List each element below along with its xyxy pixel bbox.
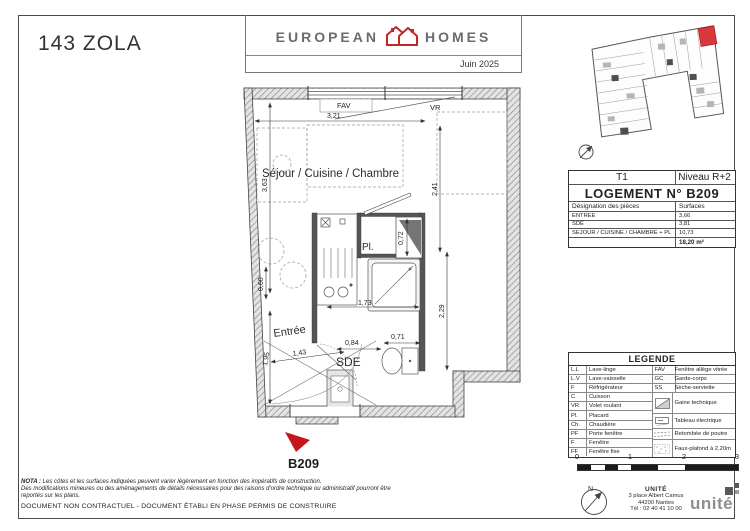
legend-label: Réfrigérateur bbox=[587, 384, 651, 392]
key-plan-compass-icon bbox=[579, 145, 593, 159]
legend-label: Porte fenêtre bbox=[587, 430, 651, 438]
total-surface: 18,20 m² bbox=[676, 238, 733, 247]
table-row: SEJOUR / CUISINE / CHAMBRE + PL 10,73 bbox=[569, 229, 735, 238]
room-surface: 3,81 bbox=[676, 221, 733, 229]
highlighted-unit bbox=[698, 26, 717, 47]
unit-level: Niveau R+2 bbox=[676, 171, 733, 184]
legend-row: CCuisson bbox=[569, 393, 652, 402]
legend-label: Volet roulant bbox=[587, 402, 651, 410]
toilet bbox=[382, 348, 418, 374]
legend-left-column: L.LLave-linge L.VLave-vaisselle FRéfrigé… bbox=[569, 366, 652, 457]
legend-label: Gaine technique bbox=[673, 393, 735, 413]
nota-line: NOTA : Les côtes et les surfaces indiqué… bbox=[21, 479, 451, 486]
room-name: ENTREE bbox=[569, 212, 676, 220]
brand-wordmark: EUROPEAN HOMES bbox=[246, 21, 521, 53]
svg-text:2,41: 2,41 bbox=[432, 182, 439, 196]
svg-text:3,63: 3,63 bbox=[262, 178, 269, 192]
brand-logo-box: EUROPEAN HOMES Juin 2025 bbox=[245, 15, 522, 73]
brand-word-right: HOMES bbox=[425, 29, 491, 45]
legend-row: Retombée de poutre bbox=[653, 429, 736, 440]
legend-row: VRVolet roulant bbox=[569, 402, 652, 411]
legend-label: Fenêtre allège vitrée bbox=[673, 366, 735, 374]
legend-label: Lave-linge bbox=[587, 366, 651, 374]
legend-abbr: PF bbox=[569, 430, 587, 438]
retombee-poutre-icon bbox=[653, 429, 673, 439]
table-row: ENTREE 3,66 bbox=[569, 212, 735, 221]
svg-text:0,60: 0,60 bbox=[258, 277, 265, 291]
scale-bar: 0 1 2 3 bbox=[570, 452, 744, 474]
legend-row: Ch.Chaudière bbox=[569, 421, 652, 430]
room-label-sde: SDE bbox=[336, 355, 361, 369]
legend-row: FAVFenêtre allège vitrée bbox=[653, 366, 736, 375]
unit-info-table: T1 Niveau R+2 LOGEMENT N° B209 Désignati… bbox=[568, 170, 736, 248]
svg-text:1,43: 1,43 bbox=[292, 349, 307, 358]
legend-label: Lave-vaisselle bbox=[587, 375, 651, 383]
legend-abbr: F bbox=[569, 384, 587, 392]
project-title: 143 ZOLA bbox=[38, 32, 142, 56]
logo-divider bbox=[246, 55, 521, 56]
scale-tick: 3 bbox=[735, 452, 739, 461]
svg-text:0,72: 0,72 bbox=[398, 231, 405, 245]
unit-number: B209 bbox=[288, 456, 319, 471]
nota-line: reportés sur les plans. bbox=[21, 493, 451, 500]
svg-text:0,84: 0,84 bbox=[345, 340, 359, 347]
window-label-fav: FAV bbox=[337, 101, 351, 110]
house-icon bbox=[385, 24, 419, 51]
legend-row: L.VLave-vaisselle bbox=[569, 375, 652, 384]
unit-title: LOGEMENT N° B209 bbox=[569, 185, 735, 202]
svg-text:3,21: 3,21 bbox=[327, 113, 341, 120]
legend-abbr: Ch. bbox=[569, 421, 587, 429]
unit-marker: B209 bbox=[285, 432, 319, 471]
room-label-placard: Pl. bbox=[362, 242, 374, 253]
legend-label: Sèche-serviette bbox=[673, 384, 735, 392]
kitchenette bbox=[317, 214, 357, 305]
empty-cell bbox=[569, 238, 676, 247]
legend-row: FRéfrigérateur bbox=[569, 384, 652, 393]
floor-plan: FAV VR bbox=[228, 78, 568, 478]
washbasin bbox=[327, 370, 353, 408]
legend-row: FFenêtre bbox=[569, 439, 652, 448]
legend-label: Cuisson bbox=[587, 393, 651, 401]
legend-label: Retombée de poutre bbox=[673, 429, 735, 439]
nota-text: Les côtes et les surfaces indiquées peuv… bbox=[41, 479, 322, 485]
legend-title: LEGENDE bbox=[569, 353, 735, 366]
legend-row: Tableau électrique bbox=[653, 414, 736, 429]
closet-door-leaf bbox=[364, 193, 411, 215]
legend-row: Pl.Placard bbox=[569, 411, 652, 420]
nota-line: Des modifications mineures ou des aménag… bbox=[21, 486, 451, 493]
legend-label: Garde-corps bbox=[673, 375, 735, 383]
room-label-entry: Entrée bbox=[273, 324, 307, 340]
legend-abbr: L.L bbox=[569, 366, 587, 374]
legend-row: GCGarde-corps bbox=[653, 375, 736, 384]
legend-label: Chaudière bbox=[587, 421, 651, 429]
footer-notes: NOTA : Les côtes et les surfaces indiqué… bbox=[21, 479, 451, 510]
col-designation: Désignation des pièces bbox=[569, 202, 676, 211]
svg-text:1,73: 1,73 bbox=[358, 300, 372, 307]
legend-row: Gaine technique bbox=[653, 393, 736, 414]
col-surfaces: Surfaces bbox=[676, 202, 733, 211]
scale-tick: 1 bbox=[628, 452, 632, 461]
legend-label: Tableau électrique bbox=[673, 414, 735, 428]
legend-table: LEGENDE L.LLave-linge L.VLave-vaisselle … bbox=[568, 352, 736, 458]
legend-row: PFPorte fenêtre bbox=[569, 430, 652, 439]
room-label-main: Séjour / Cuisine / Chambre bbox=[262, 168, 399, 180]
gaine-technique-icon bbox=[653, 393, 673, 413]
shower bbox=[368, 259, 420, 311]
unite-wordmark: unité bbox=[690, 494, 733, 514]
unit-marker-arrow bbox=[285, 432, 310, 452]
unite-logo: unité bbox=[690, 482, 740, 516]
key-plan bbox=[572, 20, 738, 162]
table-total-row: 18,20 m² bbox=[569, 238, 735, 247]
nota-label: NOTA : bbox=[21, 479, 41, 485]
room-name: SDE bbox=[569, 221, 676, 229]
legend-label: Placard bbox=[587, 411, 651, 419]
unit-type: T1 bbox=[569, 171, 676, 184]
room-surface: 3,66 bbox=[676, 212, 733, 220]
tableau-electrique-icon bbox=[653, 414, 673, 428]
scale-tick: 2 bbox=[682, 452, 686, 461]
room-surface: 10,73 bbox=[676, 229, 733, 237]
brand-word-left: EUROPEAN bbox=[276, 29, 379, 45]
room-name: SEJOUR / CUISINE / CHAMBRE + PL bbox=[569, 229, 676, 237]
scale-tick: 0 bbox=[575, 452, 579, 461]
legend-abbr: F bbox=[569, 439, 587, 447]
legend-right-column: FAVFenêtre allège vitrée GCGarde-corps S… bbox=[652, 366, 736, 457]
window-label-vr: VR bbox=[430, 103, 441, 112]
legend-abbr: VR bbox=[569, 402, 587, 410]
table-row: SDE 3,81 bbox=[569, 221, 735, 230]
svg-text:2,29: 2,29 bbox=[439, 304, 446, 318]
scale-bar-graphic bbox=[577, 464, 739, 471]
legend-abbr: L.V bbox=[569, 375, 587, 383]
legend-row: SSSèche-serviette bbox=[653, 384, 736, 393]
plan-sheet: 143 ZOLA EUROPEAN HOMES Juin 2025 bbox=[0, 0, 750, 531]
legend-abbr: Pl. bbox=[569, 411, 587, 419]
issue-date: Juin 2025 bbox=[460, 59, 499, 69]
svg-text:0,71: 0,71 bbox=[391, 334, 405, 341]
legend-row: L.LLave-linge bbox=[569, 366, 652, 375]
legend-label: Fenêtre bbox=[587, 439, 651, 447]
document-status-line: DOCUMENT NON CONTRACTUEL - DOCUMENT ÉTAB… bbox=[21, 503, 451, 510]
legend-abbr: C bbox=[569, 393, 587, 401]
